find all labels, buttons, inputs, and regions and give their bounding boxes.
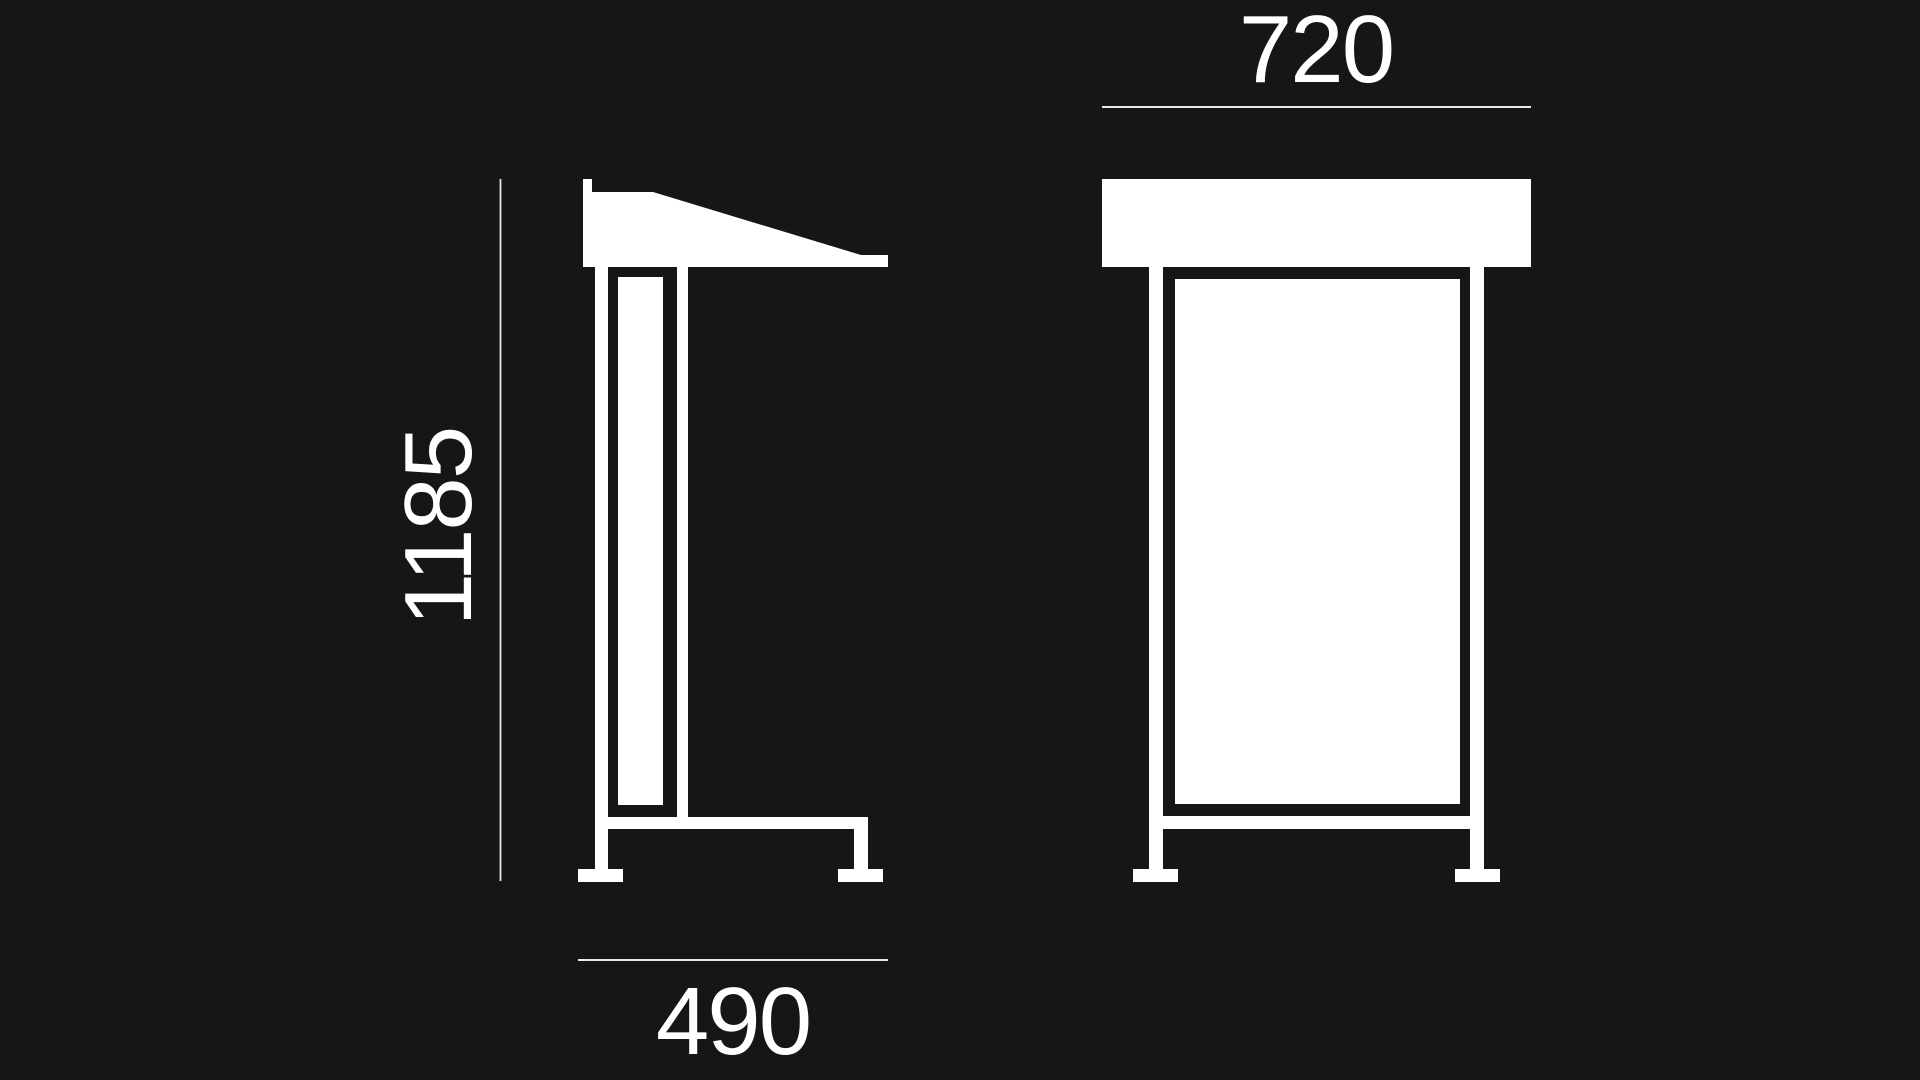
front-view-right-leg bbox=[1470, 267, 1484, 869]
side-view-base-rail bbox=[595, 817, 868, 829]
side-view-rear-foot bbox=[578, 869, 623, 882]
front-view-left-leg bbox=[1149, 267, 1163, 869]
depth-dimension-label: 490 bbox=[578, 974, 888, 1070]
width-dimension-label: 720 bbox=[1100, 2, 1532, 98]
side-view-rear-leg bbox=[595, 267, 608, 869]
height-dimension-label: 1185 bbox=[391, 428, 487, 626]
side-view-front-foot bbox=[838, 869, 883, 882]
side-view-front-leg bbox=[854, 825, 868, 869]
side-view bbox=[578, 179, 888, 882]
front-view-right-foot bbox=[1455, 869, 1500, 882]
side-view-roof bbox=[583, 179, 888, 267]
front-view-base-rail bbox=[1163, 816, 1471, 829]
front-view-left-foot bbox=[1133, 869, 1178, 882]
side-view-poster-panel-edge bbox=[618, 277, 663, 805]
front-view bbox=[1102, 179, 1531, 882]
dimension-drawing-canvas: 1185 490 720 bbox=[0, 0, 1920, 1080]
stand-drawing bbox=[0, 0, 1920, 1080]
side-view-front-upright bbox=[677, 267, 688, 820]
front-view-poster-panel bbox=[1175, 279, 1460, 804]
front-view-top-panel bbox=[1102, 179, 1531, 267]
